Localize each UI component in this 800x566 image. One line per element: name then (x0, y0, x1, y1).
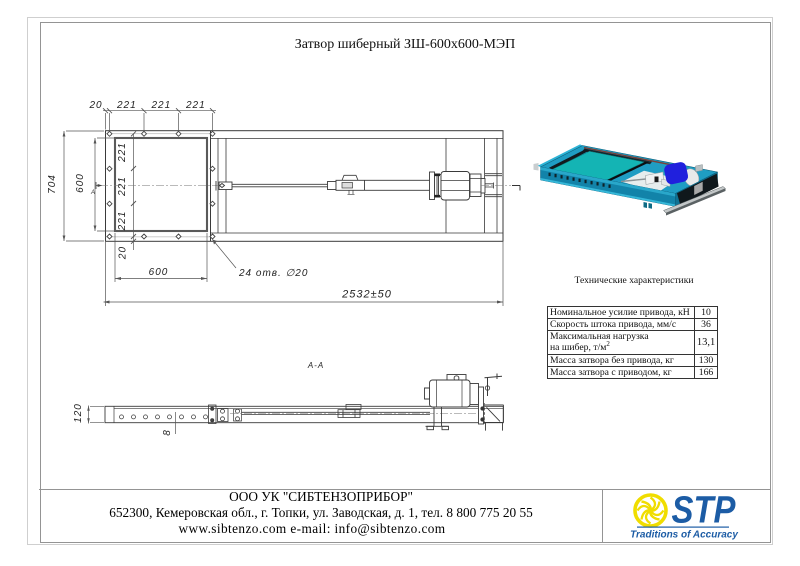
svg-text:600: 600 (75, 173, 86, 193)
svg-text:221: 221 (116, 100, 137, 111)
svg-text:20: 20 (118, 246, 129, 260)
svg-text:А: А (90, 190, 96, 196)
svg-text:221: 221 (117, 211, 128, 232)
svg-text:221: 221 (185, 100, 206, 111)
svg-text:2532±50: 2532±50 (341, 289, 392, 301)
svg-text:8: 8 (162, 429, 173, 436)
svg-text:STP: STP (672, 490, 737, 532)
svg-text:24 отв. ∅20: 24 отв. ∅20 (238, 268, 308, 279)
svg-text:120: 120 (73, 403, 84, 423)
svg-text:221: 221 (117, 176, 128, 197)
svg-text:704: 704 (47, 174, 58, 194)
svg-text:221: 221 (117, 142, 128, 163)
svg-text:20: 20 (88, 100, 102, 111)
svg-text:221: 221 (150, 100, 171, 111)
svg-text:Traditions of Accuracy: Traditions of Accuracy (630, 530, 738, 541)
svg-text:А-А: А-А (307, 361, 324, 370)
svg-text:600: 600 (149, 267, 169, 278)
